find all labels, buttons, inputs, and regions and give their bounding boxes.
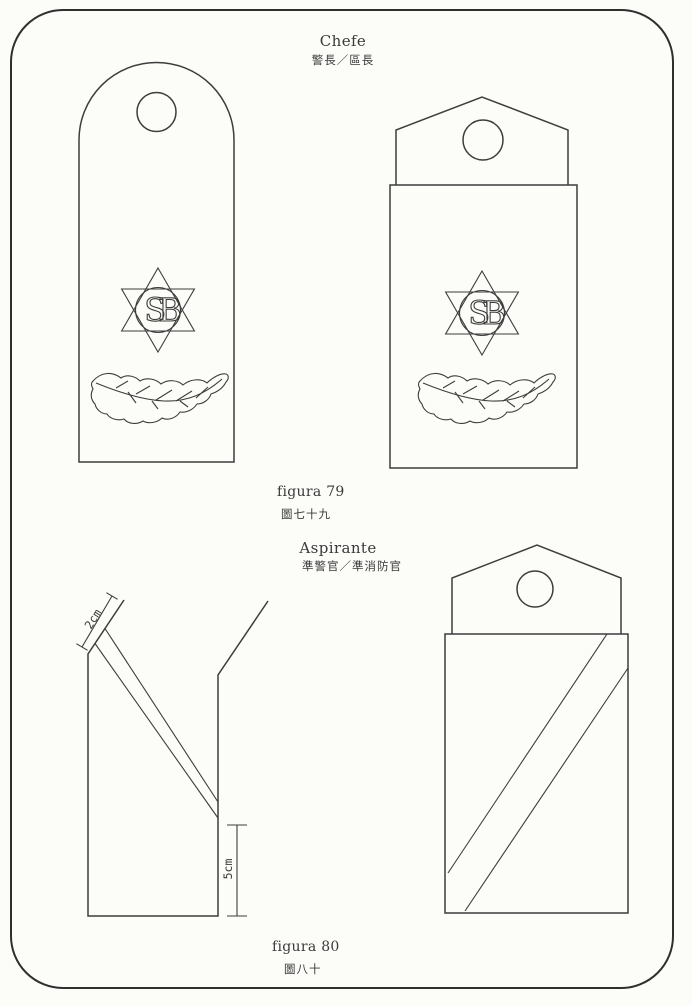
rank-title-chefe: Chefe <box>243 32 443 50</box>
pointed-flap-outline <box>452 545 621 634</box>
diagonal-stripe-lines <box>448 634 628 911</box>
scanned-page: SB <box>0 0 692 1006</box>
buttonhole-circle <box>463 120 503 160</box>
detail-outline <box>88 600 268 916</box>
rank-subtitle-chefe-zh: 警長／區長 <box>243 52 443 68</box>
pointed-flap-outline <box>396 97 568 185</box>
fig79-rounded-shoulder-strap <box>79 62 234 462</box>
buttonhole-circle <box>517 571 553 607</box>
strap-body-outline <box>445 634 628 913</box>
figure-caption-79-zh: 圖七十九 <box>281 506 331 522</box>
insignia-line-art: SB <box>0 0 692 1006</box>
rank-title-aspirante: Aspirante <box>238 539 438 557</box>
leaf-wreath <box>418 373 555 423</box>
leaf-wreath <box>91 373 228 423</box>
figure-caption-80: figura 80 <box>272 939 340 955</box>
diagonal-stripe-lines <box>95 629 218 819</box>
figure-caption-79: figura 79 <box>277 484 345 500</box>
fig80-pointed-shoulder-strap <box>445 545 628 913</box>
star-badge <box>446 271 519 355</box>
buttonhole-circle <box>137 93 176 132</box>
fig79-pointed-shoulder-strap <box>390 97 577 468</box>
star-badge <box>122 268 195 352</box>
dimension-label-5cm: 5cm <box>221 859 235 880</box>
fig80-stripe-detail-diagram <box>76 593 268 916</box>
figure-caption-80-zh: 圖八十 <box>284 961 322 977</box>
strap-outline <box>79 62 234 462</box>
rank-subtitle-aspirante-zh: 準警官／準消防官 <box>252 558 452 574</box>
